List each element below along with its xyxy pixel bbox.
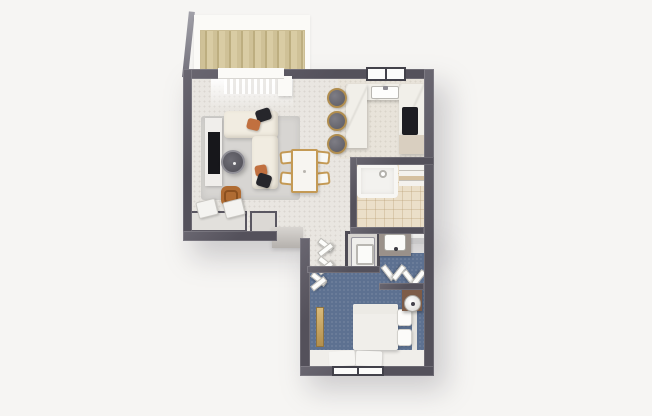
exterior-wall-bedroom-left [300,238,310,376]
round-coffee-table [221,150,245,174]
bed-blanket-fold [353,304,398,314]
kitchen-counter-peninsula [346,84,367,148]
floor-mirror [316,307,324,347]
bathroom-wall-left [350,157,357,234]
washer [351,237,375,268]
bathroom-shelf [399,164,424,186]
bathtub [357,164,398,198]
exterior-wall-right [424,69,434,376]
bar-stool [327,88,347,108]
bathroom-wall-bottom [350,227,424,234]
vanity-sink [384,234,406,251]
tv [208,132,220,174]
bedside-rug [356,351,383,367]
sheer-curtain [224,79,280,94]
kitchen-window [366,67,406,81]
exterior-wall-left [183,69,192,241]
bedroom-window [332,366,384,376]
kitchen-sink [371,86,399,99]
cooktop [402,107,418,135]
exterior-wall-living-bottom [183,231,277,241]
floor-plan-stage [0,0,652,416]
shower-head [379,170,387,178]
bar-stool [327,111,347,131]
dining-table [291,149,318,193]
bathroom-wall-top [350,157,434,165]
kitchen-lower-cabinet [399,135,424,154]
bed-pillow [397,329,412,346]
bedroom-wall-top-left [307,266,380,273]
kitchen-wall-stub [278,76,292,96]
bedside-rug [329,350,356,366]
bar-stool [327,134,347,154]
balcony-wood-deck [200,30,305,72]
bedroom-wall-top-right [379,283,424,290]
balcony-side-wall [182,11,195,77]
living-room-window [218,68,284,79]
table-lamp [404,295,421,312]
